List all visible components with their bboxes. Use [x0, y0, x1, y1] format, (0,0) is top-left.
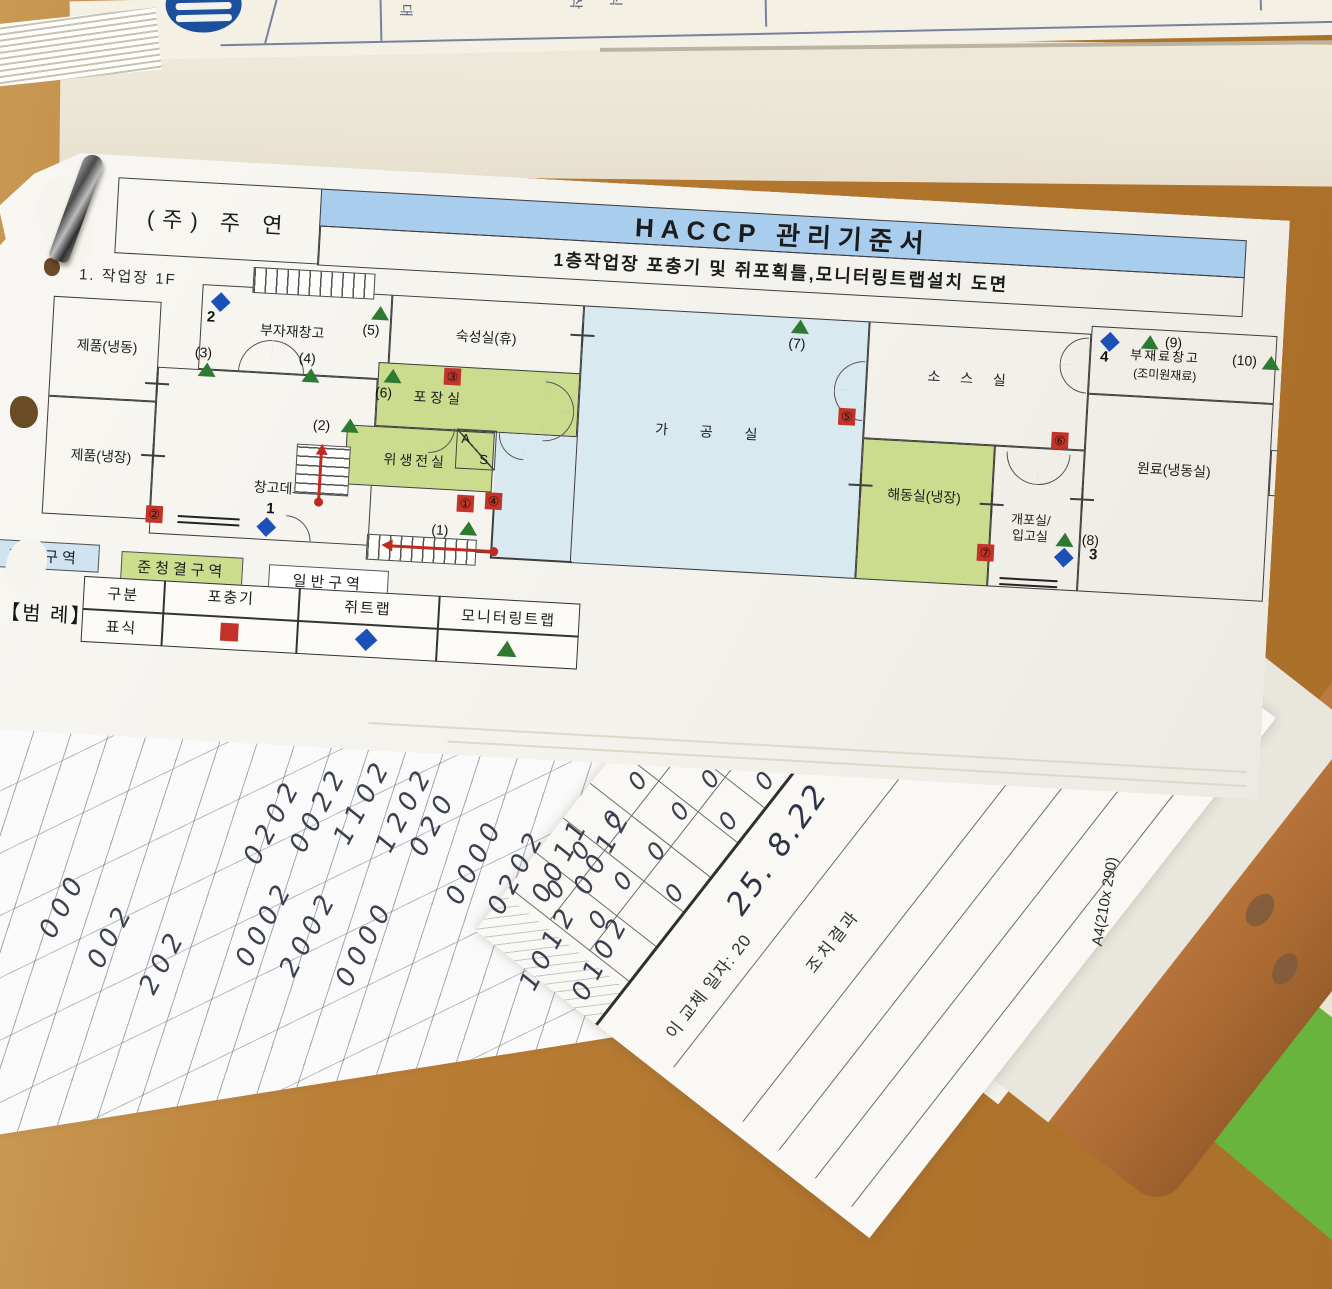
monitoring-trap-number: (9) [1165, 334, 1183, 351]
wall-break-icon [140, 443, 165, 468]
rat-trap-number: 2 [206, 308, 215, 325]
logo-stripe [176, 2, 232, 10]
wall-break-icon [1069, 487, 1094, 512]
room-haedongsil [855, 438, 995, 586]
monitoring-trap-marker-icon [1055, 532, 1074, 547]
monitoring-trap-marker-icon [791, 319, 810, 334]
monitoring-trap-number: (1) [431, 521, 449, 538]
legend-row-label: 표식 [105, 616, 138, 639]
monitoring-trap-number: (4) [298, 350, 316, 367]
top-table-slant [264, 0, 278, 45]
wall-break-icon [979, 492, 1004, 517]
air-shower-s: S [479, 452, 488, 467]
monitoring-trap-marker-icon [341, 418, 360, 433]
top-table-divider [1259, 0, 1261, 10]
monitoring-trap-number: (6) [375, 384, 393, 401]
legend-title: 【범 례】 [0, 595, 93, 629]
room-label-chwisujeong: 취수정 [1284, 457, 1300, 491]
legend-insect-trap-icon [220, 623, 239, 642]
arrow-head-icon [381, 539, 393, 552]
rat-trap-number: 1 [266, 500, 275, 517]
wall-break-icon [570, 323, 595, 348]
wall-break-icon [144, 371, 169, 396]
top-sheet-char: 식 [606, 0, 626, 6]
top-table-divider [379, 0, 382, 41]
monitoring-trap-marker-icon [384, 368, 403, 383]
insect-trap-marker-icon: ① [456, 495, 474, 513]
plan-label-1: (조미원재료) [1133, 364, 1197, 385]
insect-trap-marker-icon: ⑥ [1051, 432, 1069, 450]
paper-hole [10, 396, 38, 428]
monitoring-trap-number: (10) [1232, 352, 1258, 369]
top-sheet-char: 대 [396, 4, 416, 17]
monitoring-trap-number: (8) [1081, 532, 1099, 549]
arrow-head-icon [315, 444, 328, 456]
monitoring-trap-marker-icon [301, 368, 320, 383]
insect-trap-marker-icon: ④ [485, 492, 503, 510]
room-chwisujeong [1269, 450, 1315, 498]
monitoring-trap-marker-icon [459, 521, 478, 536]
monitoring-trap-marker-icon [198, 362, 217, 377]
room-label-jepum-naengjang: 제품(냉장) [70, 446, 132, 467]
rat-trap-number: 3 [1089, 546, 1098, 563]
top-sheet-char: 삭 [566, 0, 586, 9]
top-table-divider [764, 0, 766, 27]
room-label-jepum-naengdong: 제품(냉동) [76, 336, 138, 357]
legend-header: 포충기 [207, 585, 256, 609]
monitoring-trap-number: (5) [362, 321, 380, 338]
room-label-wisaeng-jeonsil: 위생전실 [383, 451, 447, 472]
monitoring-trap-number: (3) [194, 344, 212, 361]
insect-trap-marker-icon: ⑦ [977, 544, 995, 562]
room-label-pojangsil: 포장실 [413, 388, 465, 408]
floor-plan: 제품(냉동)제품(냉장)부자재창고창고데크숙성실(휴)포장실위생전실가 공 실소… [28, 156, 1288, 800]
insect-trap-marker-icon: ⑤ [838, 408, 856, 426]
room-label-sukseongsil: 숙성실(휴) [455, 328, 517, 349]
insect-trap-marker-icon: ② [145, 505, 163, 523]
monitoring-trap-number: (7) [788, 335, 806, 352]
room-gagongsil [570, 305, 870, 579]
logo-stripe [176, 14, 232, 22]
room-gagongsil-patch [490, 433, 579, 563]
legend-header: 쥐트랩 [344, 596, 393, 620]
room-label-gaeposil: 개포실/ 입고실 [1010, 511, 1051, 546]
legend-monitoring-trap-icon [496, 640, 517, 657]
monitoring-trap-marker-icon [1141, 335, 1160, 350]
haccp-floorplan-document: (주) 주 연 HACCP 관리기준서 1층작업장 포충기 및 쥐포획틀,모니터… [0, 148, 1290, 800]
legend-header: 구분 [107, 583, 140, 606]
monitoring-trap-number: (2) [313, 416, 331, 433]
rat-trap-number: 4 [1100, 348, 1109, 365]
monitoring-trap-marker-icon [1262, 355, 1281, 370]
company-logo-icon [165, 0, 242, 33]
room-wonryo [1077, 394, 1274, 602]
air-shower-a: A [461, 431, 470, 446]
monitoring-trap-marker-icon [371, 306, 390, 321]
insect-trap-marker-icon: ③ [443, 368, 461, 386]
wall-break-icon [848, 472, 873, 497]
